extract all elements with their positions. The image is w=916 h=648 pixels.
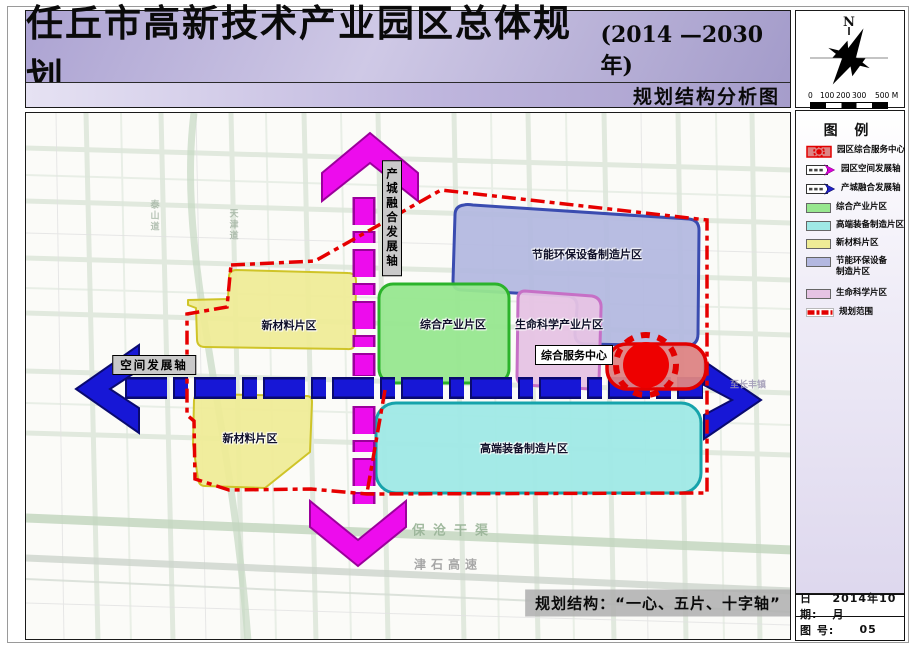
vertical-axis-label: 产城融合发展轴 — [382, 160, 402, 276]
sheet-number-label: 图 号: — [800, 622, 834, 638]
legend-item: 综合产业片区 — [806, 202, 887, 213]
compass-rose-icon — [796, 25, 902, 91]
bg-label-road-2: 天津道 — [227, 209, 240, 242]
scale-unit: 500 M — [875, 91, 898, 100]
scale-tick: 100 — [820, 91, 834, 100]
district-label-life-science: 生命科学产业片区 — [515, 316, 603, 332]
title-row: 任丘市高新技术产业园区总体规划 (2014 —2030年) — [26, 11, 790, 83]
bg-label-canal: 保沧干渠 — [412, 520, 496, 539]
legend-item-label: 生命科学片区 — [836, 288, 887, 299]
legend-item-label-line2: 制造片区 — [836, 267, 870, 277]
legend-item-label: 产城融合发展轴 — [841, 183, 901, 194]
legend-item: 产城融合发展轴 — [806, 183, 901, 195]
map-area: 节能环保设备制造片区 新材料片区 新材料片区 综合产业片区 生命科学产业片区 高… — [25, 112, 791, 640]
district-new-materials-north — [188, 270, 356, 349]
bg-label-road-1: 泰山道 — [148, 200, 161, 233]
scale-tick: 200 — [836, 91, 850, 100]
compass-box: N 0 100 200 300 500 M — [795, 10, 905, 108]
sheet-number-value: 05 — [836, 623, 900, 636]
legend-item-label: 新材料片区 — [836, 238, 879, 249]
district-label-highend-equipment: 高端装备制造片区 — [480, 440, 568, 456]
fusion-axis-swatch-icon — [806, 183, 836, 195]
title-year-range: (2014 —2030年) — [601, 14, 790, 80]
legend-item-label: 节能环保设备 制造片区 — [836, 256, 887, 278]
legend-item: 规划范围 — [806, 307, 873, 318]
district-label-new-materials-north: 新材料片区 — [262, 317, 317, 333]
legend-item: 生命科学片区 — [806, 288, 887, 299]
plan-sheet: 任丘市高新技术产业园区总体规划 (2014 —2030年) 规划结构分析图 N … — [0, 0, 916, 648]
district-label-comprehensive-industry: 综合产业片区 — [420, 316, 486, 332]
sheet-subtitle: 规划结构分析图 — [633, 82, 780, 109]
materials-swatch — [806, 239, 831, 249]
titleblock-info: 日 期: 2014年10月 图 号: 05 — [795, 594, 905, 641]
legend-item-label: 高端装备制造片区 — [836, 220, 904, 231]
legend-item: 新材料片区 — [806, 238, 879, 249]
district-comprehensive-industry — [379, 284, 509, 383]
sheet-number-row: 图 号: 05 — [796, 619, 904, 641]
life-science-swatch — [806, 289, 831, 299]
legend-item: 高端装备制造片区 — [806, 220, 904, 231]
legend-title: 图 例 — [796, 120, 902, 140]
equipment-swatch — [806, 221, 831, 231]
legend-item-label: 园区综合服务中心 — [837, 145, 905, 156]
scale-tick: 300 — [852, 91, 866, 100]
title-block: 任丘市高新技术产业园区总体规划 (2014 —2030年) 规划结构分析图 — [25, 10, 791, 108]
energy-env-swatch — [806, 257, 831, 267]
district-label-energy-env: 节能环保设备制造片区 — [532, 246, 642, 262]
space-axis-swatch-icon — [806, 164, 836, 176]
service-center-label: 综合服务中心 — [535, 345, 613, 365]
horizontal-axis-right-arrow — [704, 361, 761, 439]
subtitle-strip: 规划结构分析图 — [26, 82, 790, 107]
plan-structure-caption: 规划结构：“一心、五片、十字轴” — [525, 590, 791, 617]
date-row: 日 期: 2014年10月 — [796, 595, 904, 617]
service-center-swatch-icon — [806, 145, 832, 158]
scale-ticks: 0 100 200 300 500 M — [796, 91, 902, 100]
horizontal-axis-label: 空间发展轴 — [112, 355, 196, 375]
date-label: 日 期: — [800, 590, 830, 622]
legend: 图 例 园区综合服务中心 园区空间发展轴 — [795, 110, 905, 594]
legend-item-label-line1: 节能环保设备 — [836, 256, 887, 266]
legend-item: 园区空间发展轴 — [806, 164, 901, 176]
legend-item-label: 园区空间发展轴 — [841, 164, 901, 175]
bg-label-highway: 津石高速 — [414, 556, 482, 573]
industry-swatch — [806, 203, 831, 213]
legend-item: 园区综合服务中心 — [806, 145, 905, 158]
scale-bar — [810, 102, 888, 109]
map-canvas — [26, 113, 791, 640]
service-center — [607, 335, 706, 395]
scale-tick: 0 — [808, 91, 813, 100]
district-label-new-materials-south: 新材料片区 — [223, 430, 278, 446]
district-life-science — [517, 291, 601, 389]
bg-label-road-3: 至长丰镇 — [730, 378, 766, 391]
service-center-dot — [623, 342, 669, 388]
legend-item-label: 综合产业片区 — [836, 202, 887, 213]
legend-item: 节能环保设备 制造片区 — [806, 256, 887, 278]
vertical-axis-up-arrow — [322, 133, 418, 201]
legend-item-label: 规划范围 — [839, 307, 873, 318]
boundary-swatch-icon — [806, 307, 834, 318]
date-value: 2014年10月 — [832, 590, 900, 622]
